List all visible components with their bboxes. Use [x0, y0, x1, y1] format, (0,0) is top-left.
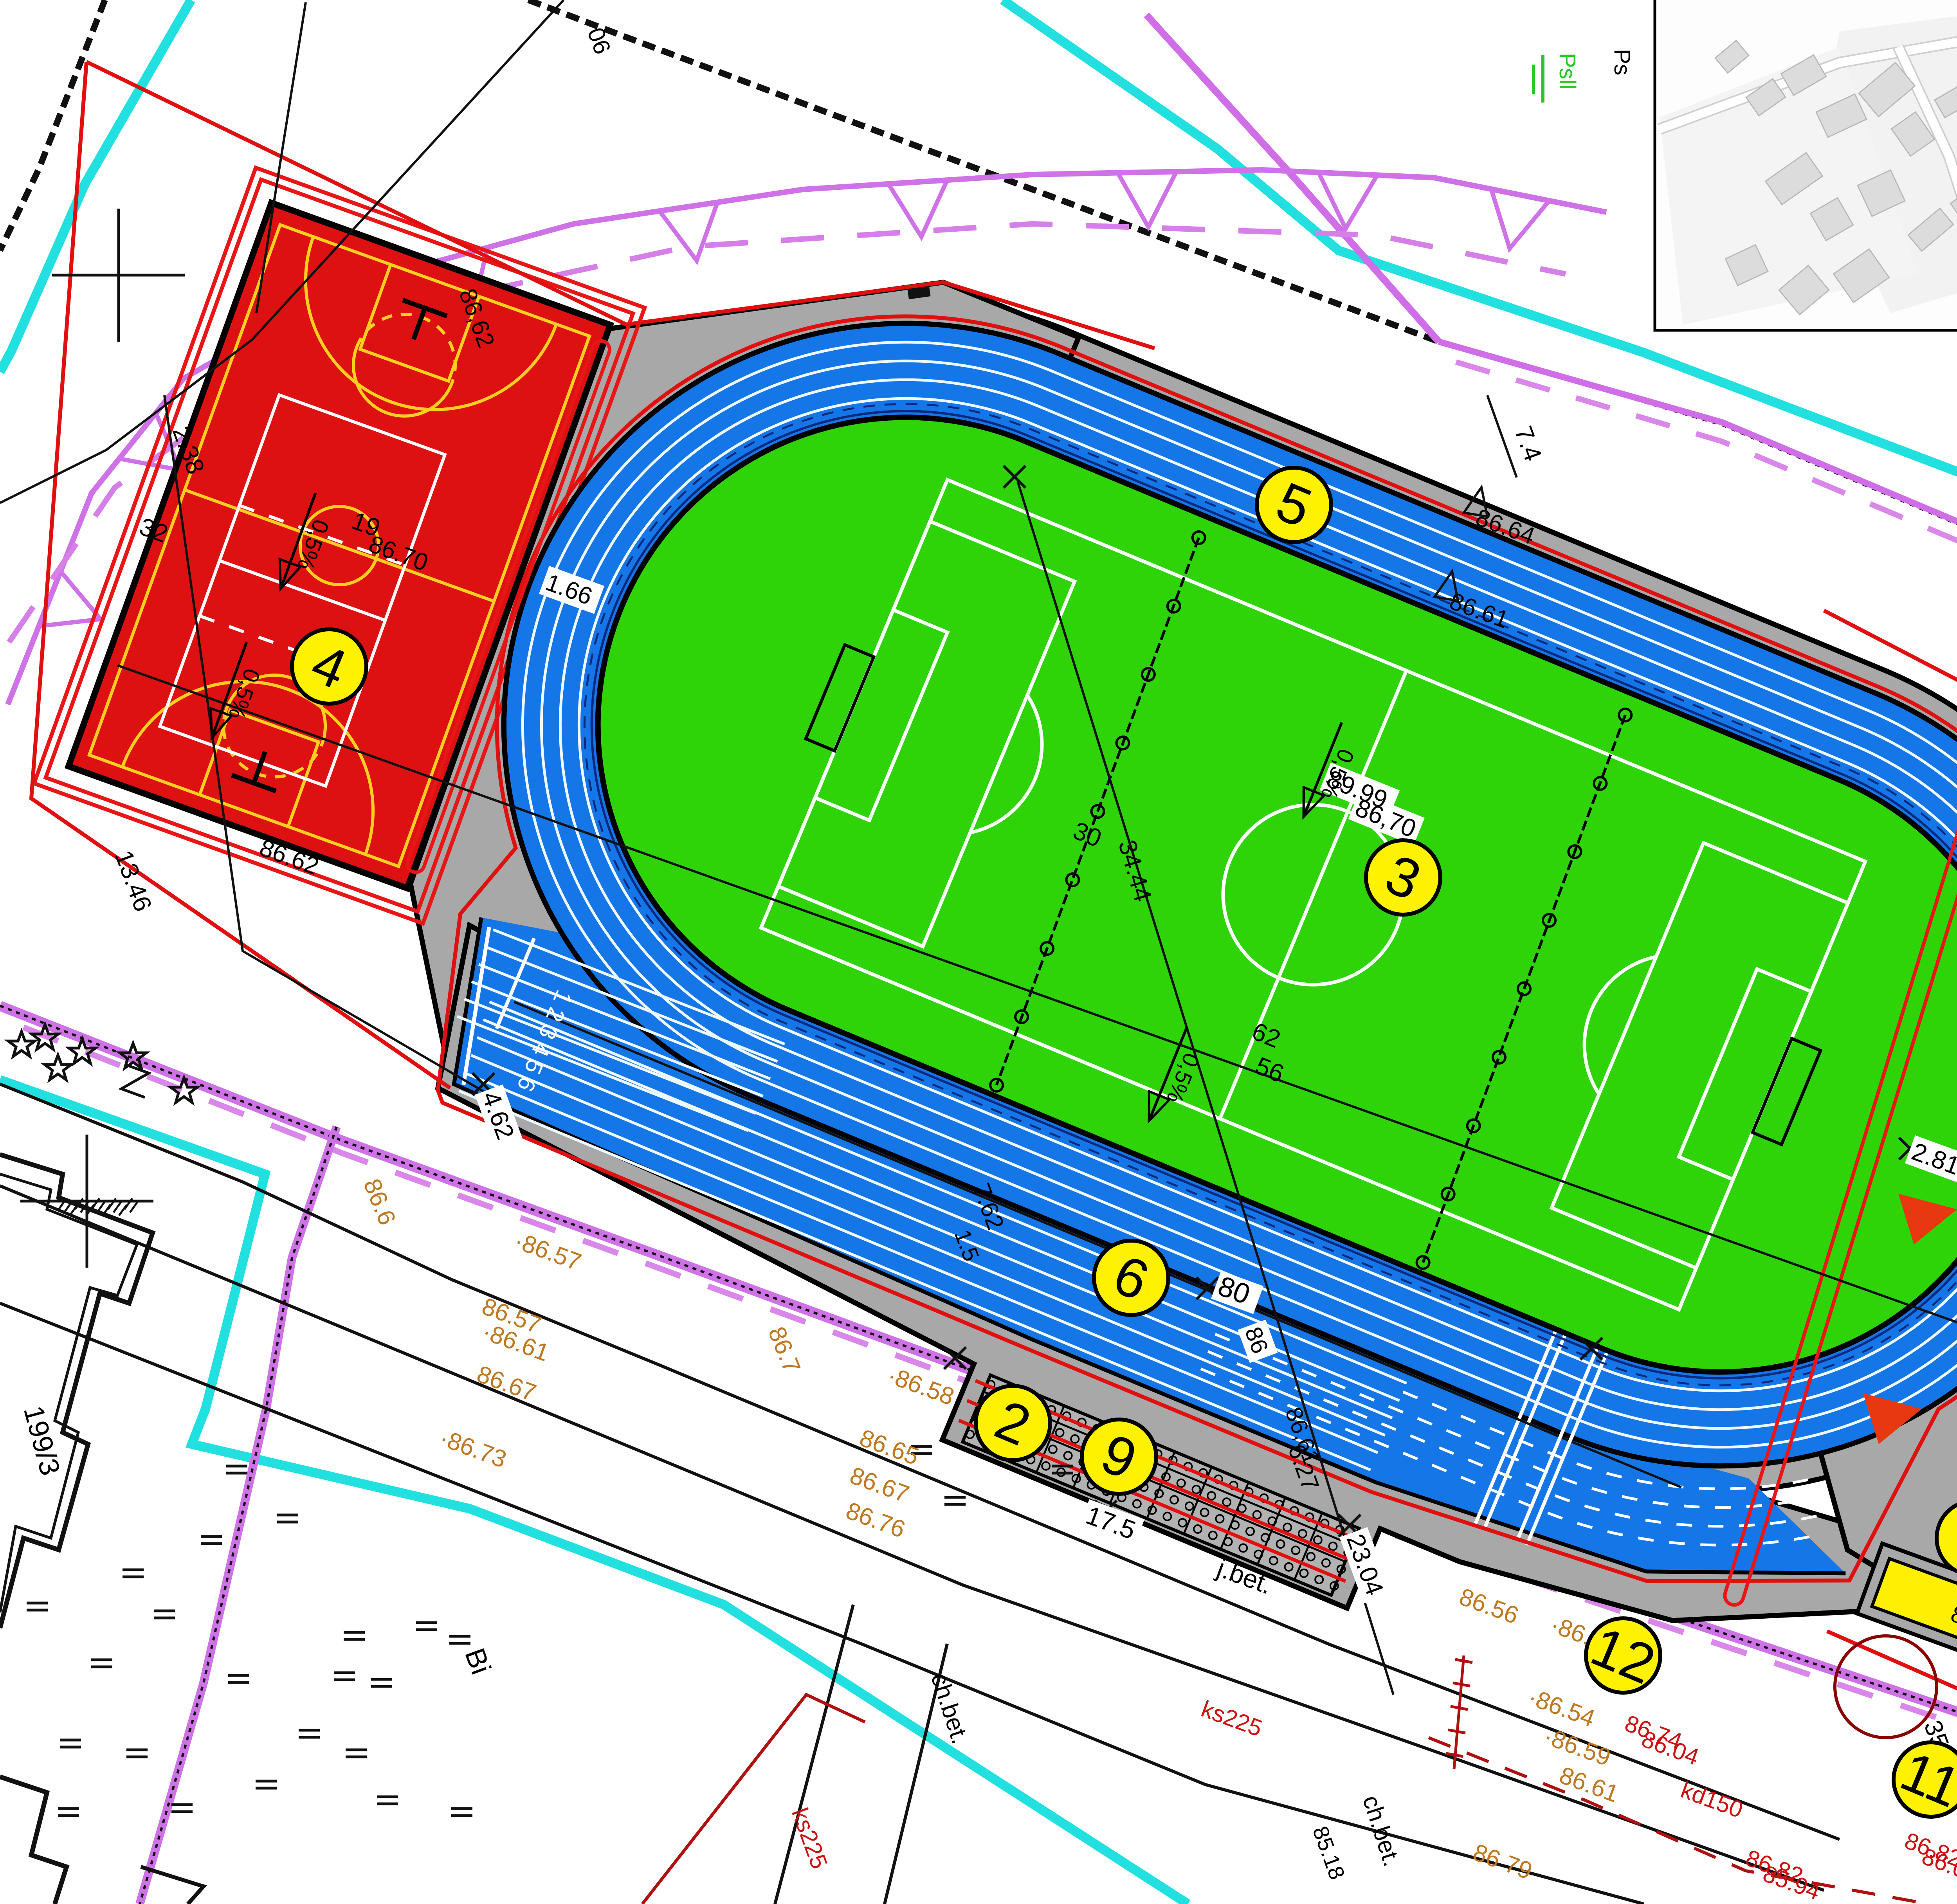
- svg-text:Psll: Psll: [1555, 53, 1580, 89]
- svg-text:Ps: Ps: [1609, 49, 1635, 76]
